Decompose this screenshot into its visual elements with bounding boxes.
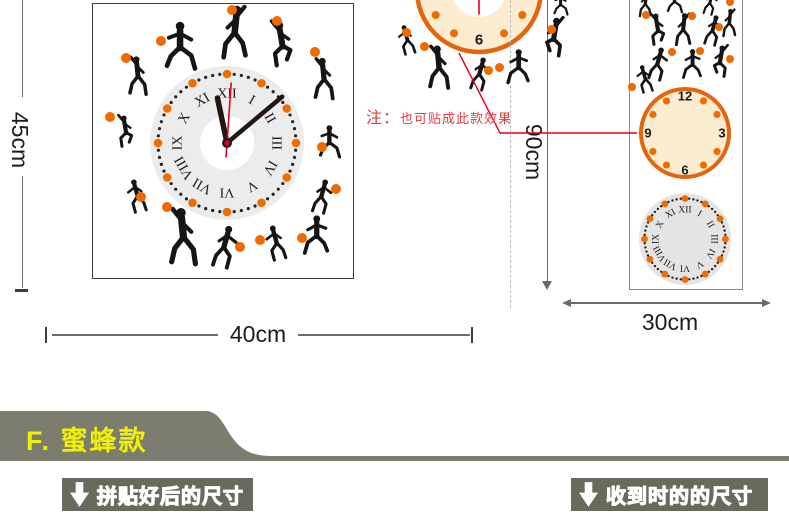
height-dim-line-lower <box>22 176 24 288</box>
basketball-icon <box>121 53 131 63</box>
basketball-icon <box>297 233 307 243</box>
basketball-icon <box>726 55 734 63</box>
caption-received-label: 收到时的的尺寸 <box>606 480 753 509</box>
width-dim-line-right <box>298 334 470 336</box>
basketball-icon <box>484 66 493 75</box>
basketball-icon <box>156 36 166 46</box>
height-dim-line-upper <box>22 0 24 97</box>
svg-text:XII: XII <box>678 206 691 216</box>
svg-text:3: 3 <box>718 126 725 141</box>
height-dim-end-tick <box>15 289 28 292</box>
width-dim-right-tick <box>471 327 473 343</box>
packed-roman-clock-face: XIIIIIIIIIVVVIVIIVIIIIXXXI <box>638 192 732 286</box>
basketball-icon <box>688 12 696 20</box>
basketball-icon <box>547 25 556 34</box>
basketball-icon <box>331 184 341 194</box>
basketball-player-icon <box>158 20 204 76</box>
basketball-player-icon <box>462 56 500 92</box>
basketball-icon <box>696 47 704 55</box>
down-arrow-icon <box>70 482 89 507</box>
dashed-separator-line <box>510 0 511 308</box>
svg-text:IX: IX <box>171 136 186 151</box>
height-dim-label: 45cm <box>8 110 32 170</box>
svg-text:VI: VI <box>680 263 690 273</box>
basketball-icon <box>136 192 146 202</box>
section-banner-label: F. 蜜蜂款 <box>26 419 148 458</box>
basketball-icon <box>420 42 429 51</box>
variant-height-dim-label: 90cm <box>522 122 546 182</box>
svg-text:6: 6 <box>475 32 483 49</box>
svg-text:VI: VI <box>219 185 234 200</box>
packed-arabic-clock-face: 12369 <box>637 85 733 181</box>
width-dim-left-tick <box>45 327 47 343</box>
basketball-player-icon <box>538 16 572 60</box>
caption-received-size: 收到时的的尺寸 <box>571 478 768 511</box>
basketball-icon <box>310 47 320 57</box>
basketball-icon <box>227 5 237 15</box>
width-dim-label: 40cm <box>218 322 298 346</box>
basketball-icon <box>715 23 723 31</box>
basketball-icon <box>402 28 411 37</box>
svg-text:III: III <box>709 234 719 244</box>
basketball-icon <box>668 48 676 56</box>
basketball-icon <box>272 16 282 26</box>
basketball-icon <box>235 242 245 252</box>
packed-width-arrowhead-right <box>762 299 771 307</box>
svg-text:IX: IX <box>652 234 662 244</box>
variant-height-arrowhead <box>542 281 552 290</box>
caption-assembled-label: 拼贴好后的尺寸 <box>97 480 244 509</box>
width-dim-line-left <box>52 334 218 336</box>
basketball-icon <box>642 11 650 19</box>
basketball-player-icon <box>160 206 204 268</box>
basketball-icon <box>628 83 636 91</box>
note-prefix: 注： <box>366 110 400 127</box>
basketball-icon <box>162 202 172 212</box>
product-size-diagram: 45cm XIIIIIIIIIVVVIVIIVIIIIXXXI 40cm 123… <box>0 0 789 519</box>
basketball-player-icon <box>308 50 338 108</box>
basketball-player-icon <box>420 44 456 91</box>
svg-text:6: 6 <box>681 163 688 178</box>
main-clock-face: XIIIIIIIIIVVVIVIIVIIIIXXXI <box>149 65 305 221</box>
svg-text:9: 9 <box>644 126 651 141</box>
packed-width-dim-label: 30cm <box>620 310 720 334</box>
basketball-icon <box>105 112 115 122</box>
basketball-icon <box>317 142 327 152</box>
basketball-player-icon <box>264 18 298 72</box>
basketball-player-icon <box>548 0 574 18</box>
basketball-icon <box>495 63 504 72</box>
caption-assembled-size: 拼贴好后的尺寸 <box>62 478 253 511</box>
packed-width-arrowhead-left <box>562 299 571 307</box>
basketball-icon <box>255 235 265 245</box>
note-annotation: 注：也可贴成此款效果 <box>366 104 512 128</box>
down-arrow-icon <box>579 482 598 507</box>
note-text: 也可贴成此款效果 <box>400 111 512 126</box>
svg-text:III: III <box>269 136 284 150</box>
packed-width-dim-line <box>566 302 765 304</box>
svg-text:12: 12 <box>678 89 692 104</box>
basketball-player-icon <box>500 48 536 88</box>
basketball-player-icon <box>720 0 740 46</box>
